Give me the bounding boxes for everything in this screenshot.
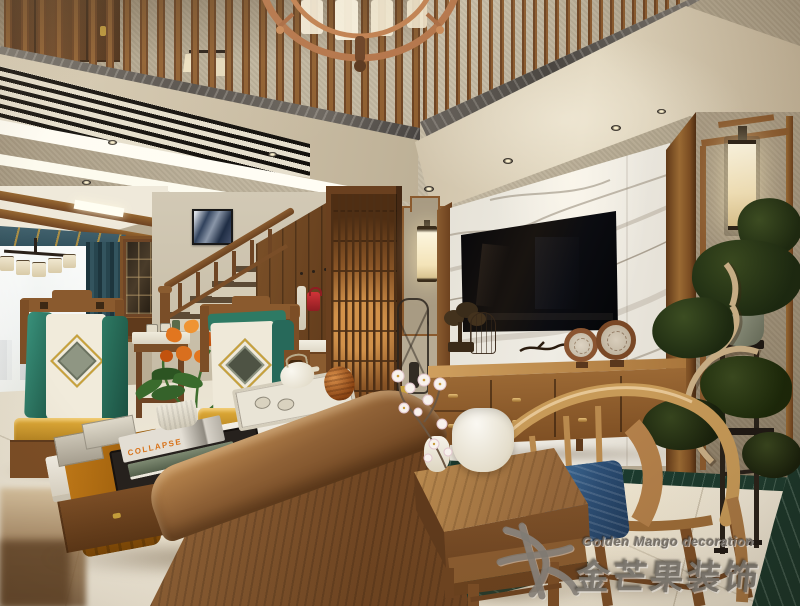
lamp-arm <box>189 50 233 53</box>
cabinet-drawer-split <box>430 410 490 412</box>
stair-step <box>212 281 278 287</box>
orange-bloom <box>176 346 192 361</box>
recessed-spotlight <box>82 180 91 185</box>
brass-pull <box>642 392 651 396</box>
wall-panel-right <box>696 112 800 482</box>
drum-shade <box>32 262 46 277</box>
lantern-bottle <box>409 362 419 388</box>
brass-pull <box>512 398 521 402</box>
tv-bottom-glint <box>467 313 613 320</box>
watermark-logo <box>492 518 584 602</box>
ring-base <box>610 360 624 367</box>
panel-step-top <box>410 196 440 212</box>
recessed-spotlight <box>108 140 117 145</box>
bonsai-pot <box>720 298 764 346</box>
ring-motif <box>574 338 590 354</box>
ceiling-beam <box>0 190 169 229</box>
brass-pull <box>578 418 587 422</box>
bonsai-foliage <box>689 236 800 319</box>
crest-cutout <box>96 302 104 309</box>
sconce-backplate <box>724 136 760 236</box>
orange-bloom <box>160 350 173 362</box>
plant-stand-plate <box>716 340 764 349</box>
bonsai-foliage <box>698 354 793 421</box>
door-handle <box>100 26 106 36</box>
stair-baluster <box>214 262 218 290</box>
wall-sconce-left <box>417 226 437 282</box>
teapot-spout <box>311 366 320 372</box>
drum-shade <box>48 258 62 273</box>
brass-pull <box>578 396 587 400</box>
red-bag-handle <box>309 287 322 296</box>
ring-ornament <box>596 320 640 370</box>
wire-lantern <box>397 298 429 394</box>
cabinet-divider <box>620 376 622 432</box>
drawer-knob <box>112 513 121 519</box>
wall-sconce-right <box>728 140 756 230</box>
panel-frame-left <box>700 146 706 470</box>
tv-reflection <box>476 244 512 309</box>
stair-riser <box>234 272 278 282</box>
led-cove-strip-2 <box>0 150 336 222</box>
foreground-blur-shadow <box>0 540 70 606</box>
cabinet-divider <box>554 379 556 437</box>
plant-stand-brace <box>724 468 764 476</box>
panel-frame-top <box>701 128 789 147</box>
ring-base <box>576 362 588 368</box>
ring-circle <box>564 328 598 362</box>
cabinet-leg <box>664 434 671 445</box>
brass-pull <box>448 394 458 398</box>
stair-baluster <box>250 240 254 268</box>
ring-circle <box>596 320 636 360</box>
panel-frame-right <box>786 116 793 470</box>
dining-cove-light <box>74 200 125 218</box>
pot-rim <box>720 298 764 306</box>
recessed-spotlight <box>424 186 434 192</box>
tv-cabinet <box>428 346 688 462</box>
lamp-shade <box>183 54 199 72</box>
stair-baluster <box>178 283 182 311</box>
stair-newel-cap <box>158 286 172 293</box>
plant-stand-shelf <box>710 428 774 435</box>
brass-pull <box>448 424 458 428</box>
bonsai-foliage <box>740 429 800 481</box>
panel-frame-step <box>718 114 774 128</box>
watermark: Golden Mango decoration 金芒果装饰 <box>492 518 792 604</box>
recessed-spotlight <box>611 125 621 131</box>
chair-crest-center <box>232 296 270 310</box>
stair-step <box>234 266 278 272</box>
cabinet-top <box>428 346 688 462</box>
upper-door <box>8 0 120 62</box>
coat-hook <box>300 272 303 275</box>
wall-artwork <box>192 209 233 245</box>
drawer-knob <box>218 491 227 497</box>
balustrade-right <box>420 0 688 128</box>
drum-shade <box>16 260 30 275</box>
figurine <box>186 86 196 108</box>
drawer-knob <box>318 470 327 476</box>
recessed-spotlight <box>503 158 513 164</box>
watermark-line-en: Golden Mango decoration <box>582 534 787 549</box>
lamp-shade <box>211 58 227 76</box>
dining-chandelier <box>0 238 80 284</box>
living-room-render: COLLAPSE <box>0 0 800 606</box>
balcony-marble-edge-right <box>408 0 700 150</box>
drum-shade <box>63 254 76 268</box>
ac-vent-grille <box>0 60 312 182</box>
chair-crest-center <box>52 290 92 304</box>
stair-baluster <box>232 251 236 279</box>
bonsai-foliage <box>734 194 800 260</box>
drum-shade <box>0 256 14 271</box>
watermark-line-cn: 金芒果装饰 <box>573 550 793 599</box>
coat-hook <box>312 270 315 273</box>
ring-ornament <box>564 328 600 370</box>
recessed-spotlight <box>268 152 277 157</box>
cabinet-divider <box>490 380 492 442</box>
upper-wall-lamp <box>183 50 245 102</box>
brass-pull <box>512 420 521 424</box>
copper-ring-chandelier <box>255 0 465 78</box>
cabinet-body <box>428 346 688 462</box>
tv-reflection <box>535 237 579 309</box>
recessed-spotlight <box>657 109 666 114</box>
chandelier-arm <box>4 250 72 258</box>
sconce-bracket <box>738 126 747 140</box>
crest-cutout <box>40 302 48 309</box>
stair-baluster <box>268 229 272 257</box>
ring-motif <box>607 331 627 351</box>
